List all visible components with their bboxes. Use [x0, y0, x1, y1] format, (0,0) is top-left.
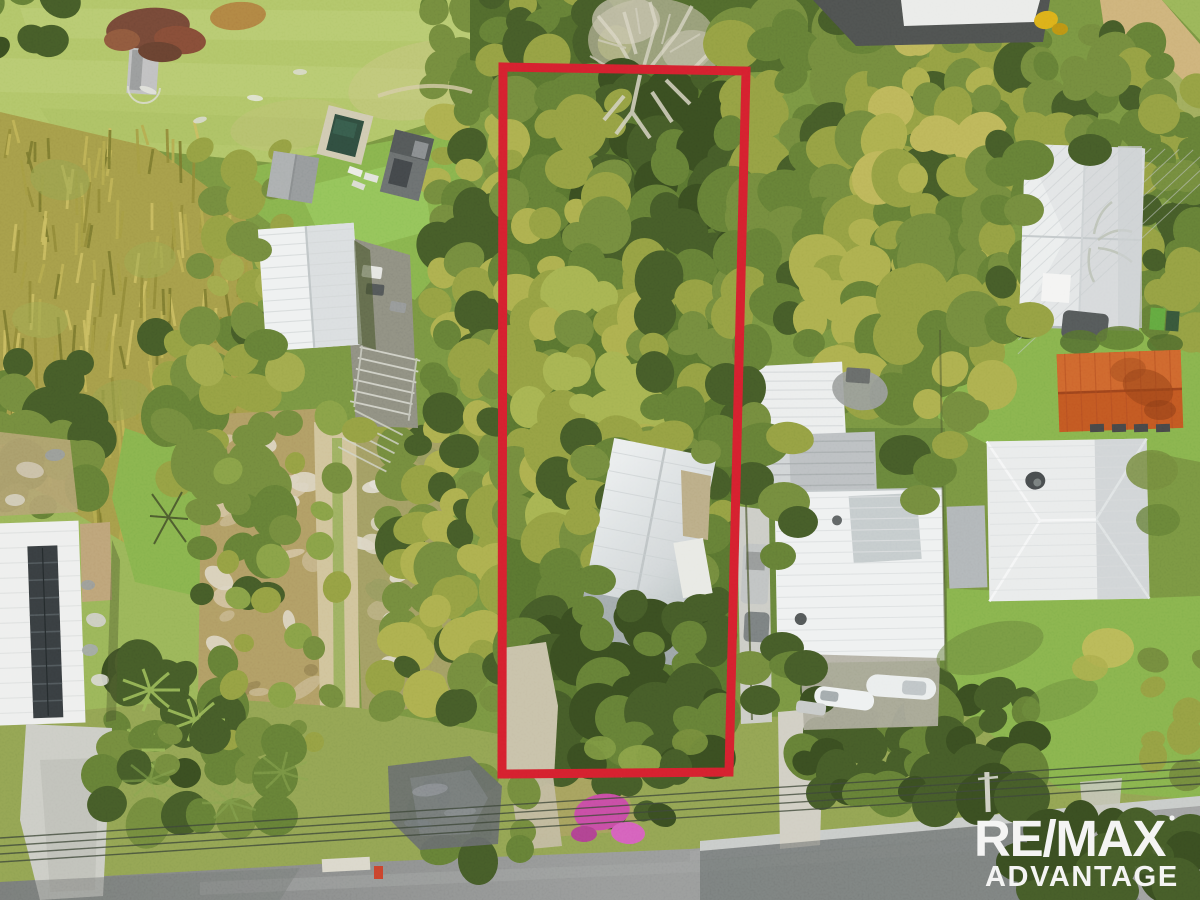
svg-text:RE/MAX: RE/MAX	[974, 810, 1166, 867]
svg-text:ADVANTAGE: ADVANTAGE	[985, 861, 1179, 893]
